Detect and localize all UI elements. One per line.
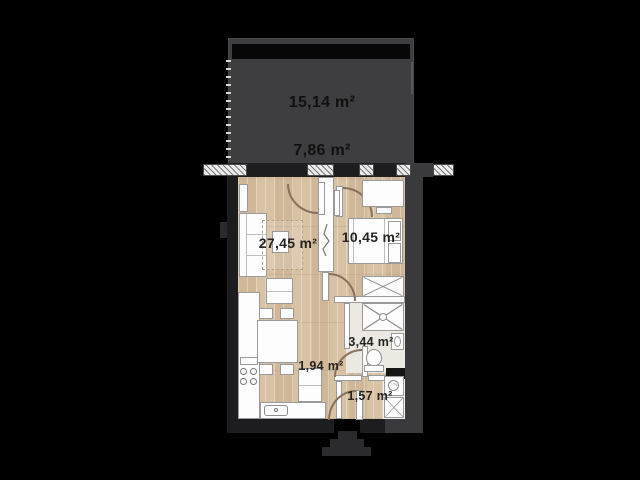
- wardrobe: [362, 276, 404, 297]
- chair-top-right: [280, 308, 294, 319]
- stove-burner-3: [240, 378, 247, 385]
- tv-cabinet: [266, 278, 293, 304]
- desk: [362, 180, 404, 207]
- bathroom-sink-basin: [394, 336, 401, 347]
- kitchen-faucet: [274, 408, 278, 412]
- window-bedroom-left: [359, 164, 374, 176]
- chair-top-left: [259, 308, 273, 319]
- label-hall: 1,94 m²: [298, 359, 343, 373]
- wardrobe-x-icon: [363, 277, 403, 296]
- sofa-back-line: [246, 214, 247, 276]
- wall-break-symbol: [319, 222, 333, 258]
- label-living-room: 27,45 m²: [259, 235, 317, 251]
- chair-bottom-left: [259, 364, 273, 375]
- cabinet-split-line: [299, 385, 321, 386]
- wall-left-notch: [220, 222, 227, 238]
- stove-burner-4: [250, 378, 257, 385]
- label-bathroom: 3,44 m²: [348, 335, 393, 349]
- stove-burner-1: [240, 368, 247, 375]
- chair-bottom-right: [280, 364, 294, 375]
- wall-left: [227, 163, 238, 419]
- wall-bottom-left: [227, 419, 334, 433]
- entrance-step-3: [322, 447, 371, 456]
- stove-burner-2: [250, 368, 257, 375]
- terrace-railing-wall: [232, 44, 410, 59]
- label-terrace-usable: 7,86 m²: [293, 142, 350, 160]
- wall-right: [405, 163, 423, 433]
- shower-drain: [379, 313, 387, 321]
- toilet-tank: [364, 365, 384, 372]
- label-bedroom: 10,45 m²: [342, 229, 400, 245]
- radiator-living: [239, 184, 248, 212]
- pillow-bottom: [388, 243, 401, 263]
- entrance-step-2: [330, 439, 364, 447]
- wall-corner-grey: [411, 163, 433, 177]
- stove-panel: [240, 357, 258, 365]
- label-wc: 1,57 m²: [347, 389, 392, 403]
- radiator-bedroom: [334, 190, 340, 216]
- window-bedroom-right: [396, 164, 411, 176]
- shower: [362, 303, 404, 331]
- door-leaf-bedroom: [322, 272, 329, 301]
- tv-cabinet-shelf-line: [267, 291, 292, 292]
- desk-tray: [376, 207, 392, 214]
- terrace-edge-line-right: [411, 62, 413, 94]
- entrance-step-1: [338, 431, 357, 439]
- dining-table: [257, 320, 298, 363]
- door-leaf-living-balcony: [318, 182, 325, 215]
- window-sill-outer-left: [203, 164, 247, 176]
- kitchen-tall-cabinet: [298, 368, 322, 402]
- window-living: [307, 164, 334, 176]
- toilet-bowl: [366, 349, 382, 366]
- label-terrace-total: 15,14 m²: [289, 94, 355, 112]
- terrace-edge-hatch-left: [226, 60, 231, 166]
- floor-plan: 15,14 m² 7,86 m² 27,45 m² 10,45 m² 3,44 …: [0, 0, 640, 480]
- window-sill-outer-right: [433, 164, 454, 176]
